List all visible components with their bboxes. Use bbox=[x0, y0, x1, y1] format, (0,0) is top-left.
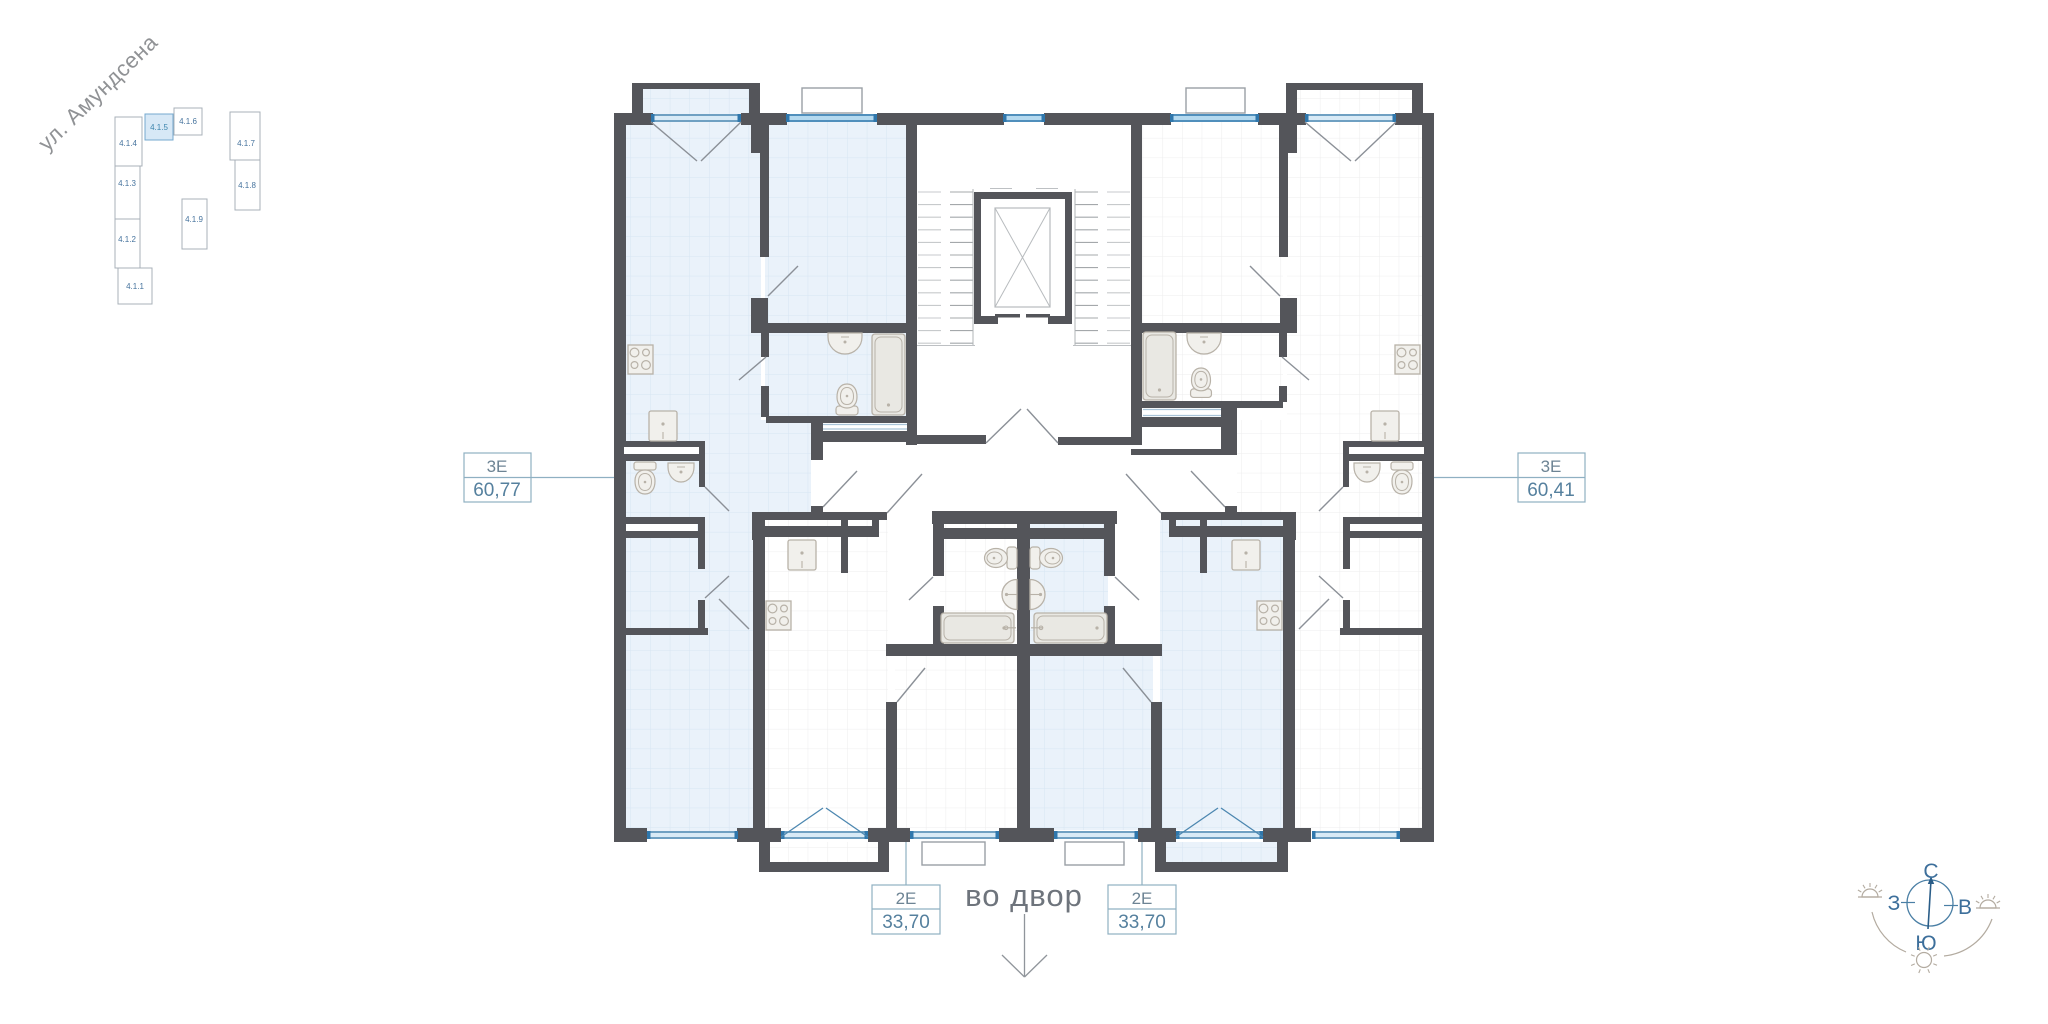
svg-text:60,77: 60,77 bbox=[473, 480, 521, 501]
svg-text:В: В bbox=[1958, 896, 1972, 919]
svg-text:4.1.1: 4.1.1 bbox=[126, 282, 144, 291]
svg-text:2Е: 2Е bbox=[896, 889, 917, 908]
svg-text:4.1.7: 4.1.7 bbox=[237, 139, 255, 148]
svg-text:4.1.9: 4.1.9 bbox=[185, 215, 203, 224]
svg-text:3Е: 3Е bbox=[487, 457, 508, 476]
svg-text:4.1.2: 4.1.2 bbox=[118, 235, 136, 244]
svg-text:Ю: Ю bbox=[1915, 932, 1936, 955]
svg-text:4.1.8: 4.1.8 bbox=[238, 181, 256, 190]
svg-text:33,70: 33,70 bbox=[1118, 912, 1166, 933]
svg-text:С: С bbox=[1923, 860, 1938, 883]
svg-text:4.1.6: 4.1.6 bbox=[179, 117, 197, 126]
svg-text:4.1.5: 4.1.5 bbox=[150, 123, 168, 132]
svg-text:2Е: 2Е bbox=[1132, 889, 1153, 908]
svg-text:во двор: во двор bbox=[965, 878, 1083, 913]
svg-text:33,70: 33,70 bbox=[882, 912, 930, 933]
svg-text:4.1.4: 4.1.4 bbox=[119, 139, 137, 148]
svg-text:3Е: 3Е bbox=[1541, 457, 1562, 476]
svg-text:З: З bbox=[1888, 892, 1901, 915]
svg-text:60,41: 60,41 bbox=[1527, 480, 1575, 501]
svg-text:4.1.3: 4.1.3 bbox=[118, 179, 136, 188]
